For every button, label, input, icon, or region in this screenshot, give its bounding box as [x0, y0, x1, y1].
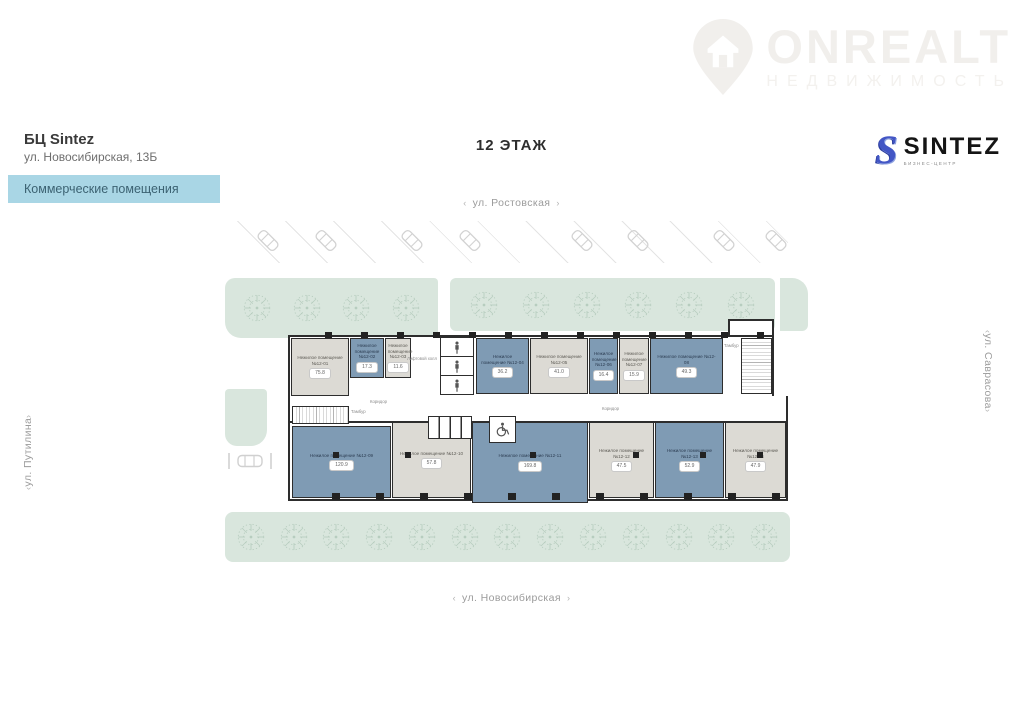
column — [405, 452, 411, 458]
vestibule-label-upper: Тамбур — [724, 343, 739, 348]
onrealt-watermark: ONREALT НЕДВИЖИМОСТЬ — [692, 18, 1013, 96]
floor-title: 12 ЭТАЖ — [0, 137, 1023, 154]
green-strip-top-right — [450, 278, 775, 331]
tree-icon — [672, 288, 706, 322]
green-block-right — [780, 278, 808, 331]
tree-icon — [619, 520, 653, 554]
area-badge: 169.8 — [518, 461, 543, 472]
room-12-02[interactable]: Нежилое помещение №12-02 17.3 — [350, 338, 384, 378]
tree-icon — [277, 520, 311, 554]
onrealt-watermark-text: ONREALT — [766, 23, 1013, 70]
tree-icon — [724, 288, 758, 322]
onrealt-watermark-subtext: НЕДВИЖИМОСТЬ — [766, 73, 1013, 91]
arrow-right-icon: › — [567, 593, 570, 603]
tree-icon — [576, 520, 610, 554]
wc-person-icon — [454, 341, 460, 354]
sintez-logo-text: SINTEZ — [904, 135, 1001, 159]
tree-icon — [621, 288, 655, 322]
wc-cell — [441, 357, 473, 376]
lift-hall-label: Лифтовой холл — [406, 356, 438, 361]
sintez-s-icon: S — [875, 130, 897, 170]
tree-icon — [448, 520, 482, 554]
column — [700, 452, 706, 458]
room-12-09[interactable]: Нежилое помещение №12-09 120.9 — [292, 426, 391, 498]
wc-cell — [441, 376, 473, 394]
stairwell-lower-left — [292, 406, 349, 424]
wheelchair-icon — [495, 422, 510, 437]
area-badge: 75.8 — [309, 368, 331, 379]
arrow-down-icon: › — [983, 409, 993, 412]
column — [633, 452, 639, 458]
green-strip-bottom — [225, 512, 790, 562]
street-label-bottom: ‹ул. Новосибирская› — [0, 592, 1023, 604]
curb-bar — [270, 453, 272, 469]
area-badge: 41.0 — [548, 367, 570, 378]
tree-icon — [405, 520, 439, 554]
room-12-01[interactable]: Нежилое помещение №12-01 75.8 — [291, 338, 349, 396]
area-badge: 49.3 — [676, 367, 698, 378]
tree-icon — [747, 520, 781, 554]
column — [333, 452, 339, 458]
column — [530, 452, 536, 458]
vestibule-label-lower: Тамбур — [351, 409, 366, 414]
wc-block — [440, 337, 474, 395]
curb-car-marker — [228, 451, 272, 471]
room-12-07[interactable]: Нежилое помещение №12-07 15.9 — [619, 338, 649, 394]
tree-icon — [490, 520, 524, 554]
tree-icon — [662, 520, 696, 554]
tree-icon — [339, 291, 373, 325]
wc-cell — [441, 338, 473, 357]
onrealt-pin-icon — [692, 18, 754, 96]
area-badge: 120.9 — [329, 460, 354, 471]
room-12-14[interactable]: Нежилое помещение №12-14 47.9 — [725, 422, 786, 498]
room-12-08[interactable]: Нежилое помещение №12-08 49.3 — [650, 338, 723, 394]
area-badge: 11.6 — [387, 362, 408, 373]
room-12-13[interactable]: Нежилое помещение №12-13 52.9 — [655, 422, 724, 498]
tree-icon — [290, 291, 324, 325]
tree-icon — [319, 520, 353, 554]
area-badge: 52.9 — [679, 461, 701, 472]
street-label-right: ‹ул. Саврасова› — [982, 330, 994, 490]
tree-icon — [240, 291, 274, 325]
stall-cells — [428, 416, 472, 439]
stairwell-upper-right — [741, 338, 772, 394]
area-badge: 15.9 — [623, 370, 645, 381]
room-12-06[interactable]: Нежилое помещение №12-06 16.4 — [589, 338, 618, 394]
arrow-up-icon: ‹ — [23, 487, 33, 490]
column — [757, 452, 763, 458]
room-12-12[interactable]: Нежилое помещение №12-12 47.5 — [589, 422, 654, 498]
corridor-label-1: Коридор — [370, 399, 387, 404]
area-badge: 47.9 — [745, 461, 767, 472]
green-strip-top-left — [225, 278, 438, 338]
area-badge: 17.3 — [356, 362, 378, 373]
tree-icon — [704, 520, 738, 554]
arrow-right-icon: › — [556, 198, 559, 208]
area-badge: 16.4 — [593, 370, 615, 381]
corridor-label-2: Коридор — [602, 406, 619, 411]
tree-icon — [362, 520, 396, 554]
curb-bar — [228, 453, 230, 469]
arrow-left-icon: ‹ — [463, 198, 466, 208]
street-label-left: ‹ул. Путилина› — [22, 330, 34, 490]
wc-person-icon — [454, 379, 460, 392]
tree-icon — [234, 520, 268, 554]
sintez-logo: S SINTEZ БИЗНЕС-ЦЕНТР — [875, 130, 1001, 170]
area-badge: 36.2 — [492, 367, 514, 378]
tree-icon — [467, 288, 501, 322]
tree-icon — [570, 288, 604, 322]
green-block-left — [225, 389, 267, 446]
car-icon — [237, 454, 263, 468]
sintez-logo-subtitle: БИЗНЕС-ЦЕНТР — [904, 161, 1001, 166]
accessible-wc — [489, 416, 516, 443]
room-12-04[interactable]: Нежилое помещение №12-04 36.2 — [476, 338, 529, 394]
column-row-top — [296, 332, 766, 338]
tree-icon — [389, 291, 423, 325]
street-label-top: ‹ул. Ростовская› — [0, 197, 1023, 209]
parking-strip — [232, 221, 788, 263]
tree-icon — [519, 288, 553, 322]
tree-icon — [533, 520, 567, 554]
column-row-bottom — [296, 493, 782, 500]
room-12-05[interactable]: Нежилое помещение №12-05 41.0 — [530, 338, 588, 394]
arrow-left-icon: ‹ — [453, 593, 456, 603]
wc-person-icon — [454, 360, 460, 373]
arrow-down-icon: › — [23, 414, 33, 417]
area-badge: 47.5 — [611, 461, 633, 472]
area-badge: 57.8 — [421, 458, 443, 469]
